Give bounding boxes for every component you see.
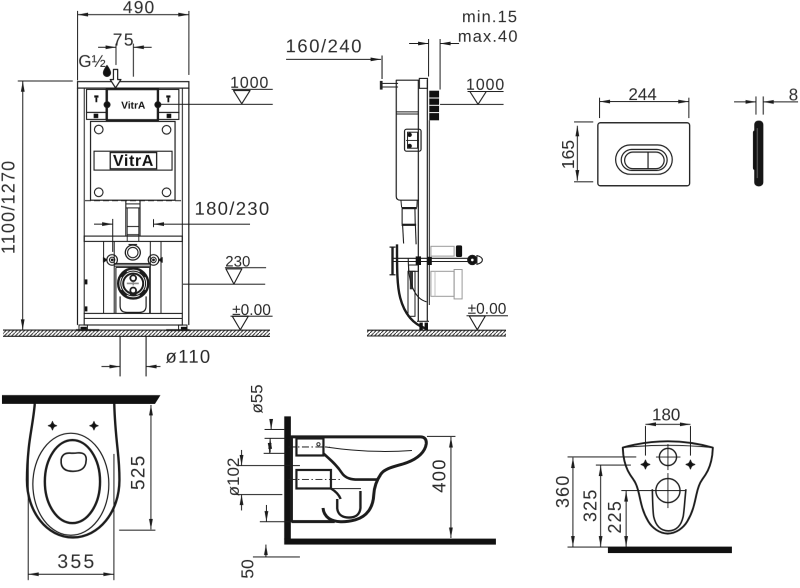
svg-text:max.40: max.40 <box>458 28 519 46</box>
svg-text:ø110: ø110 <box>165 346 211 367</box>
svg-text:355: 355 <box>57 551 96 573</box>
svg-text:160/240: 160/240 <box>286 35 363 56</box>
svg-text:ø55: ø55 <box>247 384 266 413</box>
svg-text:VitrA: VitrA <box>121 101 146 112</box>
svg-text:ø102: ø102 <box>224 458 243 497</box>
svg-text:525: 525 <box>129 454 150 490</box>
svg-text:1100/1270: 1100/1270 <box>0 160 19 255</box>
svg-text:360: 360 <box>553 474 573 508</box>
svg-text:400: 400 <box>428 458 449 492</box>
svg-text:VitrA: VitrA <box>113 153 154 170</box>
svg-text:180: 180 <box>652 405 680 424</box>
svg-text:G½: G½ <box>78 52 105 71</box>
svg-text:325: 325 <box>580 488 600 522</box>
svg-text:min.15: min.15 <box>462 8 518 26</box>
svg-text:50: 50 <box>237 559 257 579</box>
svg-text:165: 165 <box>558 140 578 169</box>
svg-text:180/230: 180/230 <box>195 198 271 219</box>
svg-text:225: 225 <box>605 500 625 534</box>
